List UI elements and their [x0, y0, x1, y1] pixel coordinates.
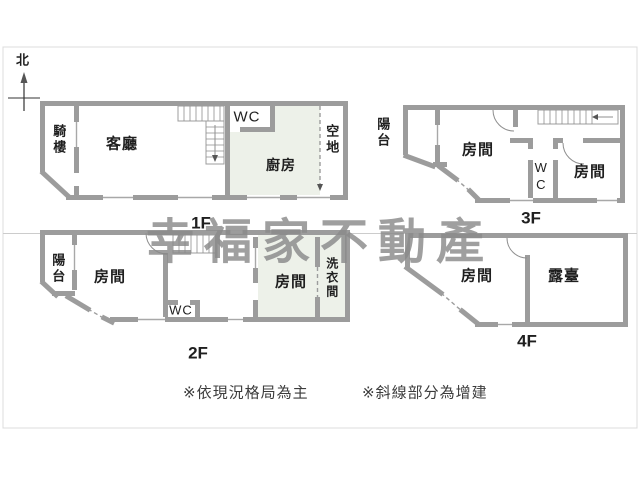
stairs-1f	[178, 106, 224, 164]
room-label-1f-open-space: 空地	[324, 124, 339, 156]
room-label-2f-room2: 房間	[275, 275, 307, 292]
room-label-3f-balcony: 陽台	[375, 117, 390, 149]
note-current-layout: ※依現況格局為主	[183, 382, 309, 403]
room-label-1f-living: 客廳	[106, 137, 138, 154]
room-label-3f-wc: WC	[533, 160, 548, 194]
floorplan-canvas: 北 騎樓 客廳 WC 廚房 空地 1F 陽台 房間 WC 房間 洗衣間 2F 陽…	[0, 0, 640, 480]
door-arc-3f-room2	[563, 143, 584, 164]
floor-label-2f: 2F	[188, 343, 208, 362]
door-arc-3f-room1	[493, 110, 514, 131]
room-label-4f-terrace: 露臺	[548, 269, 580, 286]
room-label-2f-wc: WC	[169, 304, 193, 319]
floor-label-4f: 4F	[517, 331, 537, 350]
room-label-2f-room1: 房間	[94, 270, 126, 287]
room-label-3f-room1: 房間	[462, 143, 494, 160]
north-label: 北	[16, 54, 30, 69]
room-label-2f-balcony: 陽台	[50, 253, 65, 285]
floorplan-3f	[403, 105, 625, 203]
stairs-3f	[538, 110, 618, 124]
room-label-1f-kitchen: 廚房	[266, 158, 296, 174]
room-label-3f-room2: 房間	[574, 165, 606, 182]
north-arrow-icon	[8, 72, 40, 111]
note-addition-hatched: ※斜線部分為增建	[362, 382, 488, 403]
floorplan-1f	[40, 101, 348, 200]
room-label-1f-arcade: 騎樓	[51, 124, 66, 156]
floor-label-3f: 3F	[521, 208, 541, 227]
agency-watermark: 幸福家不動產	[146, 202, 494, 272]
room-label-1f-wc: WC	[234, 110, 261, 127]
door-arc-4f	[507, 238, 527, 258]
